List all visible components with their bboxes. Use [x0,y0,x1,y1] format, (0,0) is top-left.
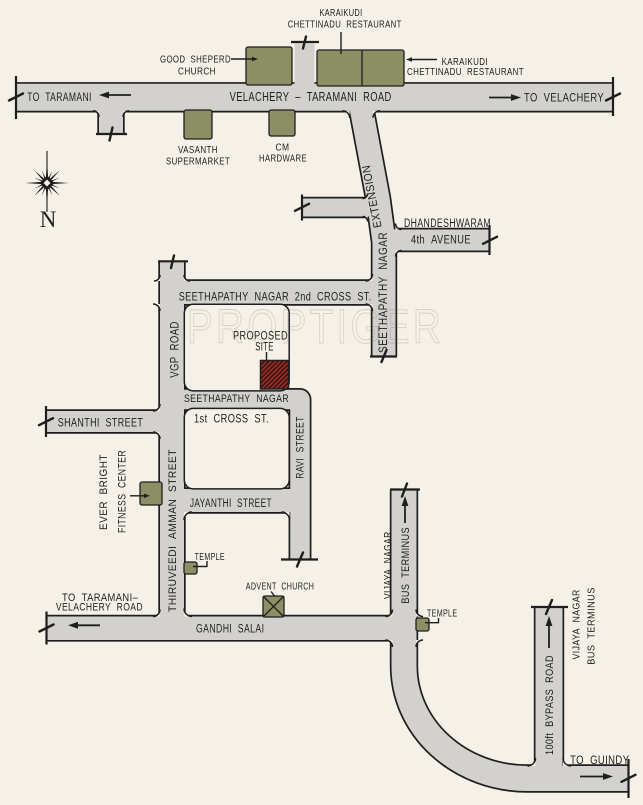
svg-text:4th AVENUE: 4th AVENUE [411,235,471,247]
svg-text:BUS TERMINUS: BUS TERMINUS [400,527,412,604]
svg-text:TO TARAMANI: TO TARAMANI [27,90,92,104]
svg-text:SEETHAPATHY NAGAR: SEETHAPATHY NAGAR [378,232,390,353]
svg-text:N: N [40,207,57,232]
svg-text:TEMPLE: TEMPLE [427,608,458,619]
svg-text:FITNESS CENTER: FITNESS CENTER [117,450,129,533]
svg-text:VGP ROAD: VGP ROAD [170,321,182,378]
svg-text:100ft BYPASS ROAD: 100ft BYPASS ROAD [544,655,556,755]
svg-text:TO VELACHERY: TO VELACHERY [524,91,604,105]
svg-text:VELACHERY ROAD: VELACHERY ROAD [56,602,143,614]
svg-text:SITE: SITE [255,342,274,354]
svg-text:SEETHAPATHY NAGAR: SEETHAPATHY NAGAR [184,393,289,405]
svg-text:DHANDESHWARAM: DHANDESHWARAM [404,218,491,230]
svg-text:KARAIKUDI: KARAIKUDI [320,7,363,19]
svg-text:CHURCH: CHURCH [178,66,216,78]
svg-text:JAYANTHI STREET: JAYANTHI STREET [190,498,272,510]
svg-text:RAVI STREET: RAVI STREET [295,416,307,479]
svg-text:SUPERMARKET: SUPERMARKET [166,156,230,168]
svg-text:TEMPLE: TEMPLE [195,552,225,563]
svg-text:SHANTHI STREET: SHANTHI STREET [58,418,143,430]
svg-text:SEETHAPATHY NAGAR 2nd CROSS: SEETHAPATHY NAGAR 2nd CROSS ST. [179,289,372,303]
svg-text:GOOD SHEPERD: GOOD SHEPERD [160,54,231,66]
svg-text:TO GUINDY: TO GUINDY [570,755,629,767]
svg-text:THIRUVEEDI AMMAN STREET: THIRUVEEDI AMMAN STREET [167,449,179,612]
svg-text:GANDHI SALAI: GANDHI SALAI [196,624,264,636]
svg-text:ADVENT CHURCH: ADVENT CHURCH [246,581,314,593]
svg-text:CHETTINADU RESTAURANT: CHETTINADU RESTAURANT [288,19,402,31]
svg-text:VELACHERY – TARAMANI ROAD: VELACHERY – TARAMANI ROAD [230,89,392,104]
svg-text:CHETTINADU RESTAURANT: CHETTINADU RESTAURANT [407,66,524,78]
svg-text:EVER BRIGHT: EVER BRIGHT [98,454,110,530]
svg-text:1st CROSS ST.: 1st CROSS ST. [194,414,269,426]
svg-text:VASANTH: VASANTH [178,144,218,156]
svg-text:HARDWARE: HARDWARE [259,153,307,165]
svg-text:PROPTIGER: PROPTIGER [187,301,444,354]
svg-text:BUS TERMINUS: BUS TERMINUS [585,587,597,665]
svg-text:VIJAYA NAGAR: VIJAYA NAGAR [570,589,582,659]
svg-text:VIJAYA NAGAR: VIJAYA NAGAR [382,531,394,599]
